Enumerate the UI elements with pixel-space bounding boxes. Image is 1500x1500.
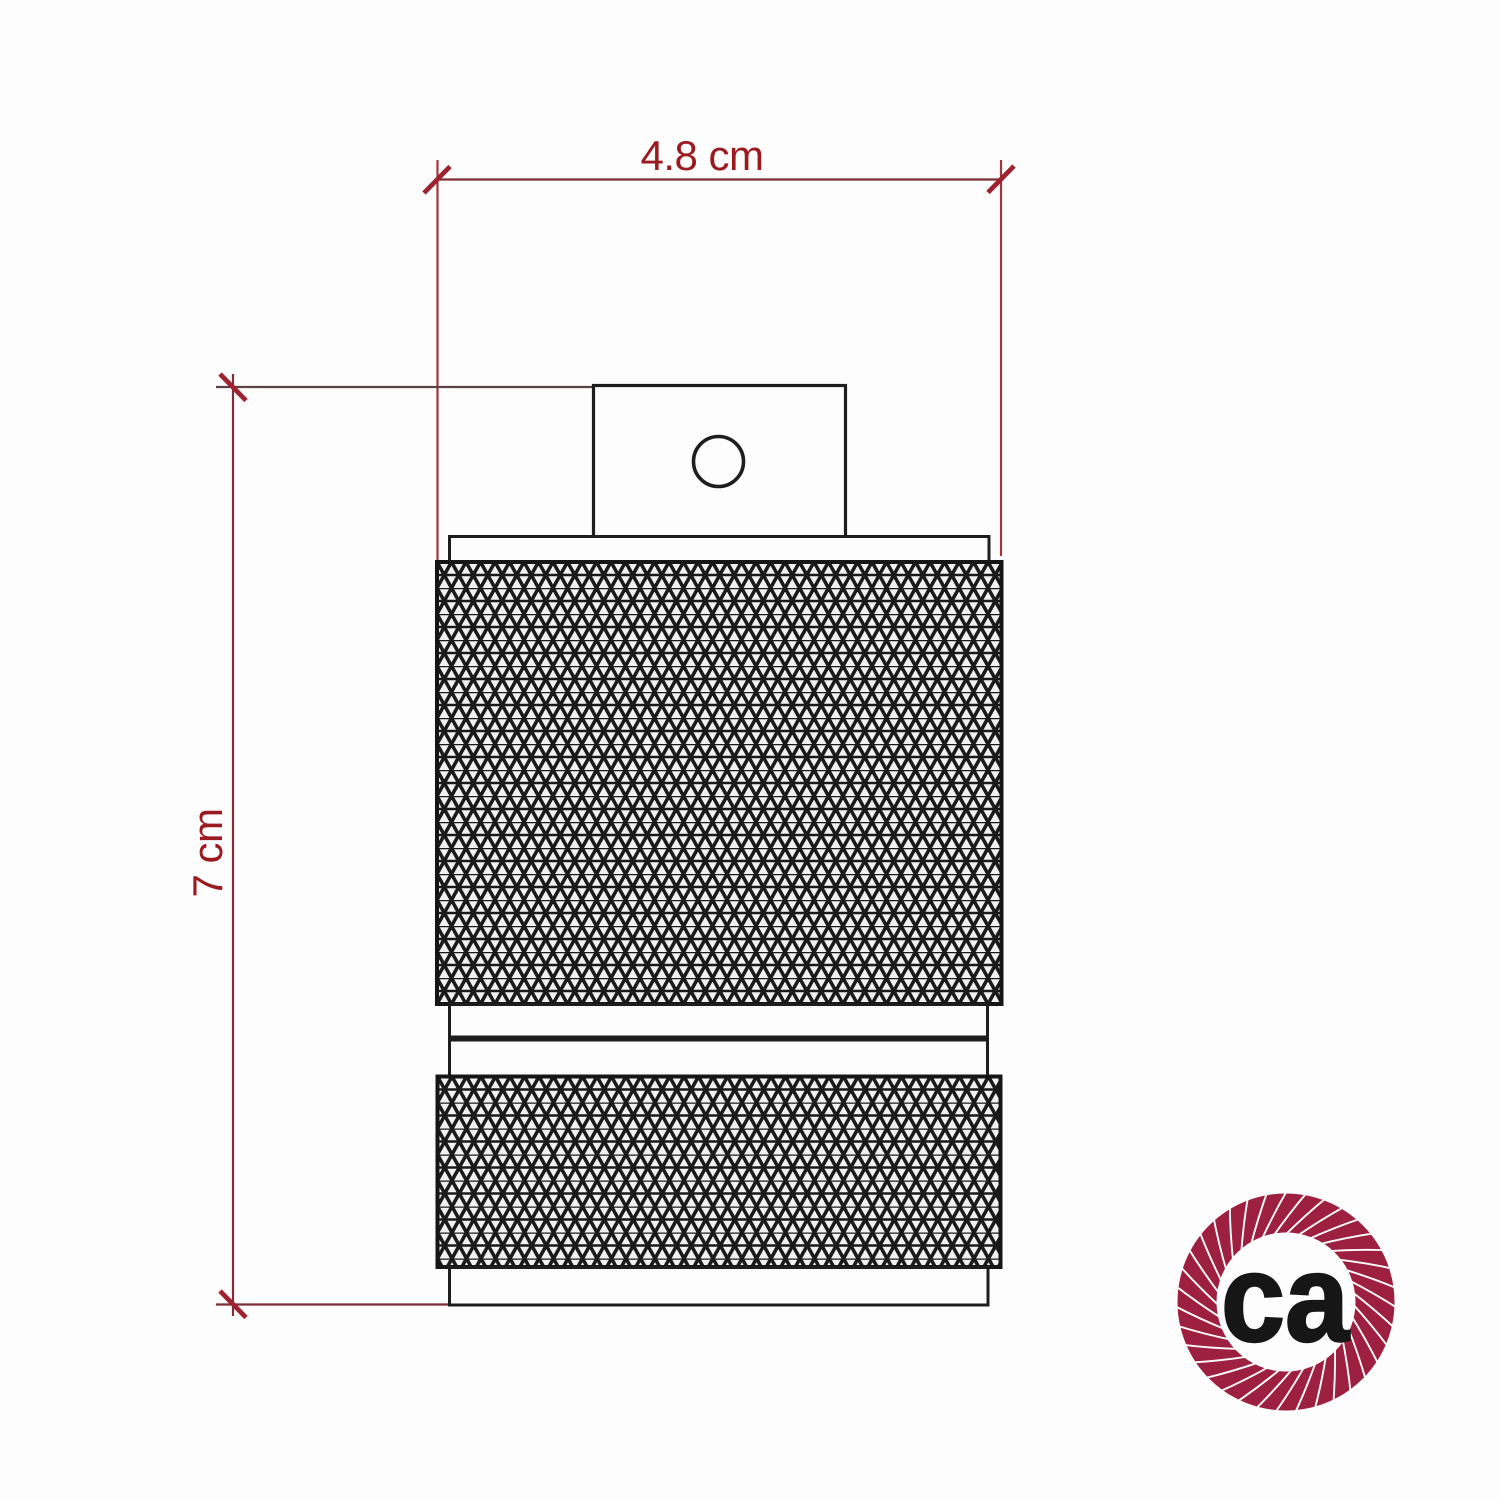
svg-text:ca: ca	[1221, 1230, 1350, 1368]
svg-text:4.8 cm: 4.8 cm	[640, 132, 763, 179]
svg-text:7 cm: 7 cm	[184, 808, 231, 897]
